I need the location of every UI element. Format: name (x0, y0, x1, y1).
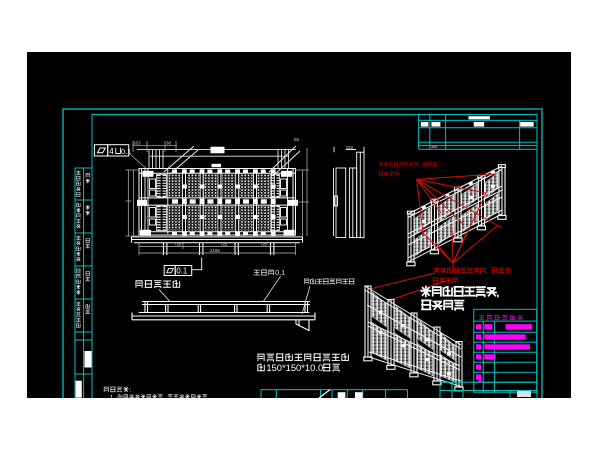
svg-text::: : (130, 387, 132, 394)
svg-text:0.1: 0.1 (176, 267, 187, 276)
svg-text:150: 150 (346, 145, 354, 150)
svg-text:55: 55 (294, 137, 300, 142)
svg-text:725: 725 (174, 242, 182, 247)
svg-text:0.1: 0.1 (275, 268, 285, 277)
svg-text:150*150*10.0: 150*150*10.0 (266, 362, 323, 373)
svg-text:725: 725 (260, 242, 268, 247)
svg-text:0.1: 0.1 (121, 147, 131, 156)
svg-text:4: 4 (109, 147, 114, 156)
svg-text:725: 725 (220, 242, 228, 247)
svg-text:38: 38 (166, 140, 172, 145)
svg-text:163: 163 (133, 140, 141, 145)
svg-text:2165: 2165 (210, 248, 220, 253)
